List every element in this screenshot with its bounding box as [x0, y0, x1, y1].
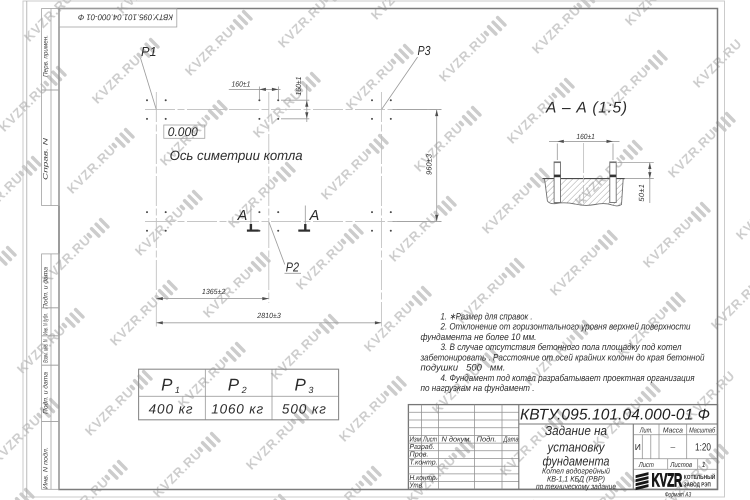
svg-text:KVZR.RU: KVZR.RU: [640, 216, 695, 271]
svg-text:KVZR.RU: KVZR.RU: [243, 418, 298, 473]
svg-text:A: A: [237, 208, 248, 224]
svg-text:установку: установку: [547, 440, 606, 455]
svg-text:Масштаб: Масштаб: [689, 425, 716, 434]
svg-text:KVZR.RU: KVZR.RU: [107, 294, 162, 349]
svg-text:А – А (1:5): А – А (1:5): [545, 99, 627, 116]
svg-text:KVZR.RU: KVZR.RU: [733, 188, 750, 243]
svg-text:Утв.: Утв.: [409, 481, 424, 490]
svg-text:Масса: Масса: [663, 425, 683, 434]
svg-text:KVZR.RU: KVZR.RU: [225, 176, 280, 231]
svg-text:KVZR.RU: KVZR.RU: [436, 30, 491, 85]
svg-text:P2: P2: [286, 259, 300, 274]
svg-text:1060 кг: 1060 кг: [211, 402, 263, 417]
svg-text:по нагрузкам на фундамент .: по нагрузкам на фундамент .: [421, 382, 535, 393]
svg-text:Взам. инв. N: Взам. инв. N: [43, 339, 50, 363]
svg-text:KVZR.RU: KVZR.RU: [368, 0, 423, 23]
svg-text:KVZR.RU: KVZR.RU: [336, 390, 391, 445]
svg-text:160±1: 160±1: [294, 77, 303, 96]
svg-text:P 1: P 1: [161, 376, 180, 396]
svg-text:960±3: 960±3: [425, 153, 434, 175]
svg-text:Инв. N дубл.: Инв. N дубл.: [43, 313, 50, 335]
svg-text:2810±3: 2810±3: [256, 311, 281, 320]
svg-text:160±1: 160±1: [576, 132, 595, 141]
svg-text:Листов: Листов: [669, 460, 692, 469]
svg-text:KVZR.RU: KVZR.RU: [182, 24, 237, 79]
svg-text:A: A: [309, 208, 320, 224]
svg-text:ЗАВОД РЭП: ЗАВОД РЭП: [684, 481, 711, 488]
svg-text:КВТУ.095.101.04.000-01 Ф: КВТУ.095.101.04.000-01 Ф: [78, 12, 173, 21]
svg-text:Дата: Дата: [503, 434, 519, 443]
svg-text:Инв. N подл.: Инв. N подл.: [43, 447, 50, 489]
svg-text:KVZR.RU: KVZR.RU: [0, 80, 51, 135]
svg-text:KVZR.RU: KVZR.RU: [386, 210, 441, 265]
svg-text:И: И: [635, 442, 641, 452]
svg-text:KVZR.RU: KVZR.RU: [275, 0, 330, 51]
svg-text:0.000: 0.000: [168, 125, 198, 139]
svg-text:KVZR.RU: KVZR.RU: [57, 474, 112, 500]
svg-text:KVZR.RU: KVZR.RU: [0, 170, 26, 225]
svg-text:1: 1: [702, 460, 706, 469]
svg-text:Лит.: Лит.: [639, 425, 653, 434]
svg-text:Перв. примен.: Перв. примен.: [43, 35, 50, 77]
svg-text:Подп. и дата: Подп. и дата: [43, 267, 50, 309]
svg-text:КВТУ.095.101.04.000-01 Ф: КВТУ.095.101.04.000-01 Ф: [520, 406, 710, 423]
svg-text:KVZR.RU: KVZR.RU: [547, 244, 602, 299]
svg-text:Т.контр.: Т.контр.: [410, 457, 438, 466]
svg-text:по техническому задание: по техническому задание: [536, 482, 617, 491]
svg-text:Подп.: Подп.: [477, 434, 497, 443]
svg-text:KVZR.RU: KVZR.RU: [293, 238, 348, 293]
svg-text:KVZR.RU: KVZR.RU: [150, 446, 205, 500]
svg-text:–: –: [670, 442, 676, 452]
svg-text:P1: P1: [141, 44, 157, 59]
svg-text:Справ. N: Справ. N: [43, 137, 50, 180]
svg-text:KVZR.RU: KVZR.RU: [343, 58, 398, 113]
svg-text:KVZR.RU: KVZR.RU: [0, 260, 1, 315]
svg-text:N докум.: N докум.: [442, 434, 472, 443]
svg-text:KVZR.RU: KVZR.RU: [708, 278, 750, 333]
svg-text:KVZR.RU: KVZR.RU: [411, 120, 466, 175]
svg-text:Ось симетрии котла: Ось симетрии котла: [170, 148, 303, 163]
svg-text:KVZR.RU: KVZR.RU: [665, 126, 720, 181]
svg-text:KVZR.RU: KVZR.RU: [361, 300, 416, 355]
svg-text:50±1: 50±1: [637, 184, 646, 202]
svg-text:1:20: 1:20: [695, 441, 711, 453]
svg-text:KVZR.RU: KVZR.RU: [132, 204, 187, 259]
svg-text:KVZR.RU: KVZR.RU: [82, 384, 137, 439]
svg-text:KVZR.RU: KVZR.RU: [64, 142, 119, 197]
svg-text:Формат А3: Формат А3: [665, 492, 692, 499]
svg-text:160±1: 160±1: [232, 79, 251, 88]
svg-text:Подп. и дата: Подп. и дата: [43, 372, 50, 414]
svg-text:KVZR.RU: KVZR.RU: [529, 2, 584, 57]
svg-text:Лист: Лист: [638, 460, 654, 469]
svg-text:400 кг: 400 кг: [149, 402, 193, 417]
svg-text:KVZR.RU: KVZR.RU: [0, 412, 44, 467]
svg-text:P3: P3: [418, 43, 432, 58]
svg-text:KVZR.RU: KVZR.RU: [479, 182, 534, 237]
svg-text:P 3: P 3: [294, 376, 313, 396]
svg-text:1365±2: 1365±2: [202, 287, 226, 296]
svg-text:КОТЕЛЬНЫЙ: КОТЕЛЬНЫЙ: [684, 473, 716, 481]
svg-text:KVZR.RU: KVZR.RU: [89, 52, 144, 107]
svg-text:P 2: P 2: [228, 376, 247, 396]
svg-text:KVZR: KVZR: [652, 471, 683, 492]
svg-text:KVZR.RU: KVZR.RU: [318, 148, 373, 203]
svg-text:500 кг: 500 кг: [282, 402, 326, 417]
svg-text:KVZR.RU: KVZR.RU: [268, 328, 323, 383]
svg-text:KVZR.RU: KVZR.RU: [622, 0, 677, 29]
svg-text:Задание на: Задание на: [545, 423, 607, 438]
